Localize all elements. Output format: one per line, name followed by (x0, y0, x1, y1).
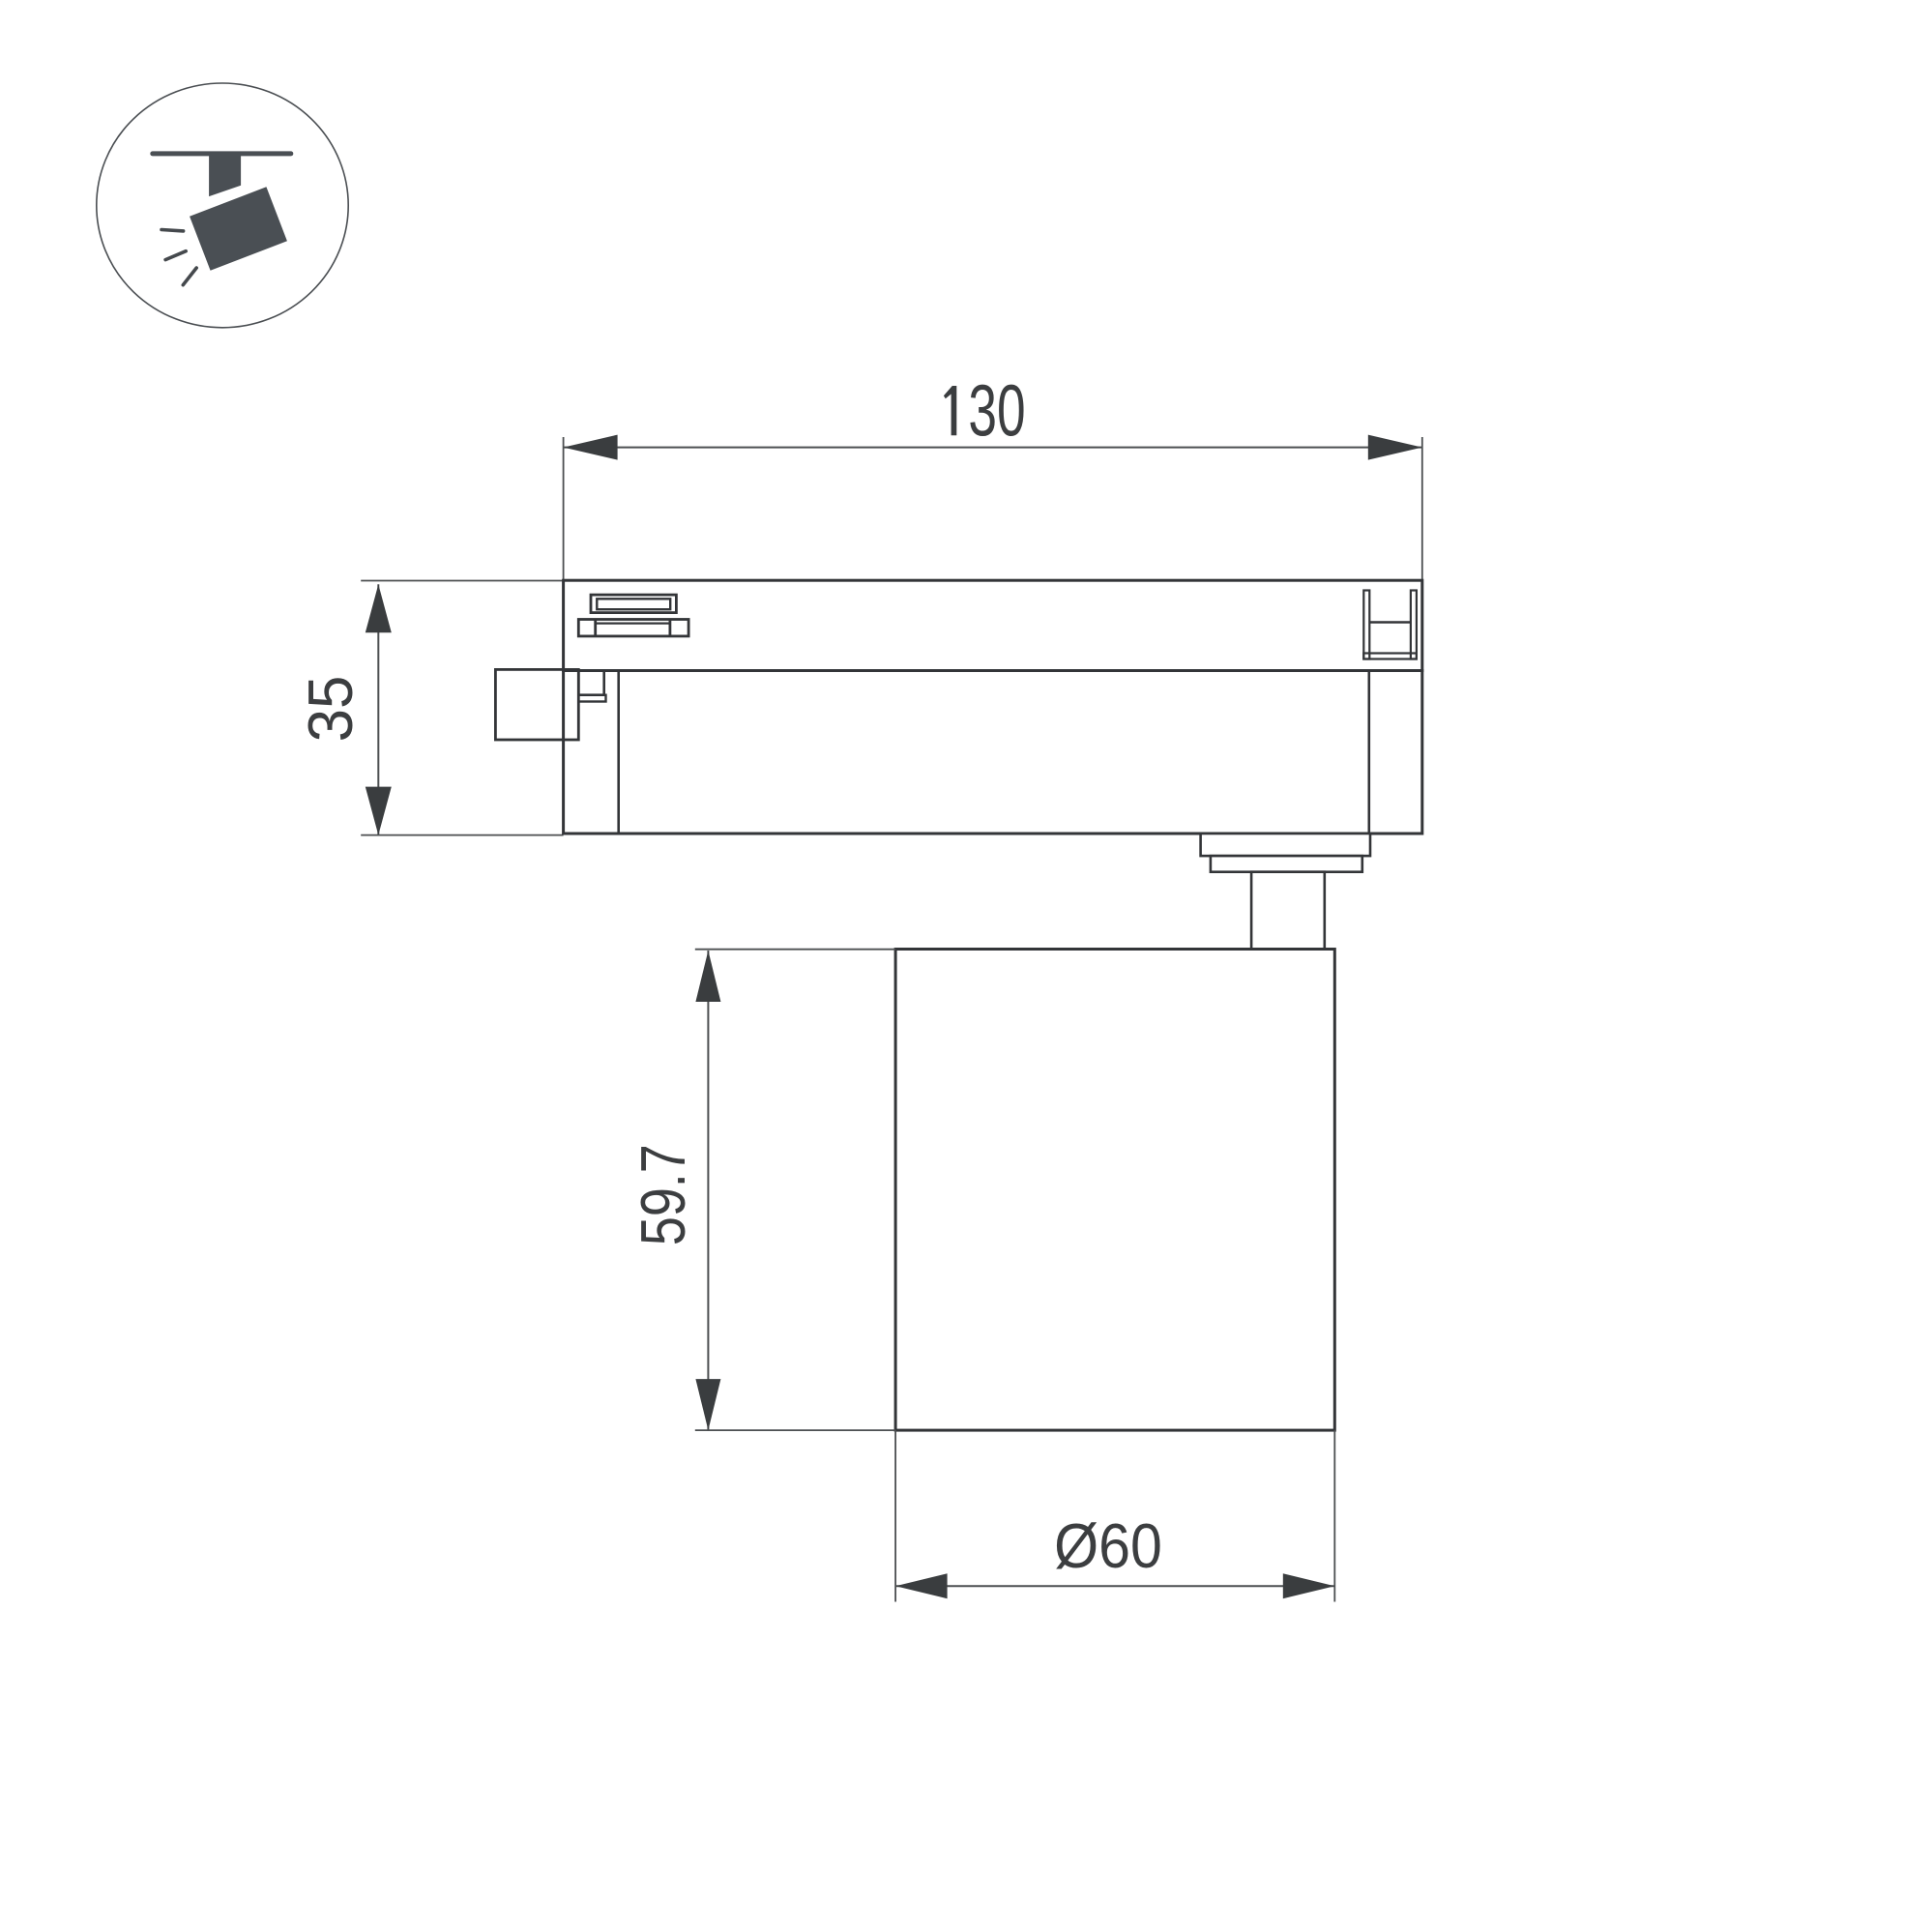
svg-text:30: 30 (968, 369, 1025, 451)
svg-text:Ø60: Ø60 (1054, 1511, 1162, 1581)
svg-text:35: 35 (297, 676, 366, 743)
svg-text:59.7: 59.7 (628, 1144, 698, 1245)
